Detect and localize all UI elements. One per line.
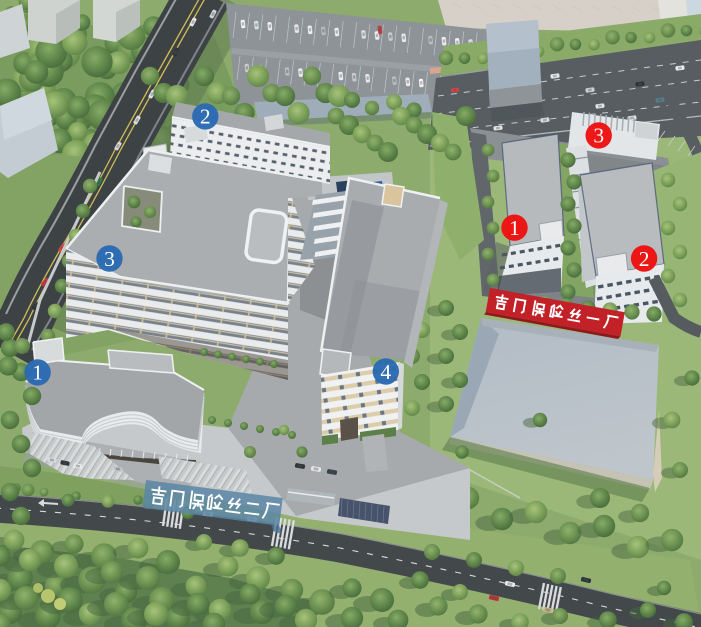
svg-text:2: 2 bbox=[639, 247, 650, 271]
svg-text:4: 4 bbox=[380, 360, 391, 384]
svg-text:3: 3 bbox=[104, 247, 115, 271]
svg-text:1: 1 bbox=[32, 361, 43, 385]
svg-text:3: 3 bbox=[593, 124, 604, 148]
svg-text:2: 2 bbox=[200, 105, 211, 129]
svg-text:1: 1 bbox=[509, 216, 520, 240]
